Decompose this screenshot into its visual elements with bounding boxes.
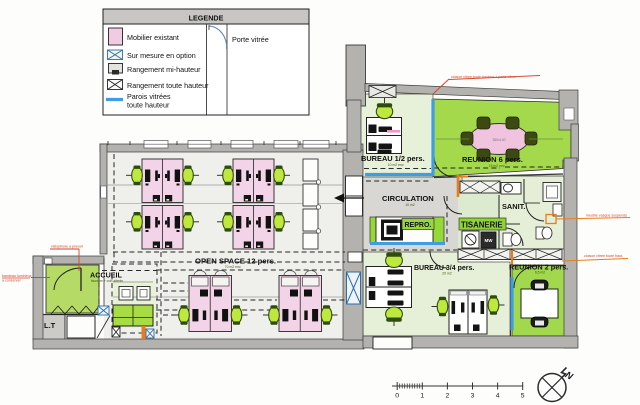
svg-text:10 m2 env.: 10 m2 env.	[388, 163, 405, 167]
svg-text:Rangement toute hauteur: Rangement toute hauteur	[127, 81, 209, 90]
svg-text:0: 0	[395, 393, 399, 400]
svg-text:REUNION 6 pers.: REUNION 6 pers.	[462, 155, 523, 164]
svg-text:10 m2: 10 m2	[405, 203, 415, 207]
svg-text:360x140: 360x140	[492, 138, 505, 142]
svg-text:Porte vitrée: Porte vitrée	[232, 35, 269, 44]
svg-text:a conserver: a conserver	[2, 279, 22, 283]
svg-text:L.T: L.T	[44, 321, 56, 330]
svg-text:cloison vitree toute haut.: cloison vitree toute haut.	[584, 254, 623, 258]
svg-text:CIRCULATION: CIRCULATION	[382, 194, 434, 203]
svg-text:LEGENDE: LEGENDE	[189, 14, 224, 23]
svg-text:4: 4	[496, 393, 500, 400]
svg-text:MW: MW	[485, 238, 494, 243]
svg-text:20 m2: 20 m2	[442, 272, 452, 276]
svg-text:meuble vasque suspendu: meuble vasque suspendu	[586, 214, 627, 218]
svg-text:3: 3	[471, 393, 475, 400]
svg-text:bandeau lumineux: bandeau lumineux	[2, 274, 32, 278]
svg-text:1: 1	[420, 393, 424, 400]
svg-text:Sur mesure en option: Sur mesure en option	[127, 51, 196, 60]
svg-text:2: 2	[446, 393, 450, 400]
svg-text:cloison vitree toute hauteur +: cloison vitree toute hauteur + porte vit…	[451, 75, 516, 79]
svg-text:BUREAU 1/2 pers.: BUREAU 1/2 pers.	[361, 154, 425, 163]
svg-text:visiophone a prevoir: visiophone a prevoir	[51, 245, 84, 249]
svg-text:Mobilier existant: Mobilier existant	[127, 33, 179, 42]
svg-text:Rangement mi-hauteur: Rangement mi-hauteur	[127, 65, 201, 74]
svg-text:70 m2 env.: 70 m2 env.	[225, 265, 242, 269]
svg-text:REPRO.: REPRO.	[405, 222, 432, 229]
svg-text:toute hauteur: toute hauteur	[127, 101, 170, 110]
svg-text:6,5 m2: 6,5 m2	[535, 271, 545, 275]
svg-text:5: 5	[521, 393, 525, 400]
svg-text:SANIT.: SANIT.	[502, 202, 525, 211]
svg-text:TISANERIE: TISANERIE	[461, 221, 503, 230]
svg-text:15 m2 env.: 15 m2 env.	[489, 164, 506, 168]
svg-text:tisaniere + coin attente: tisaniere + coin attente	[91, 279, 123, 283]
